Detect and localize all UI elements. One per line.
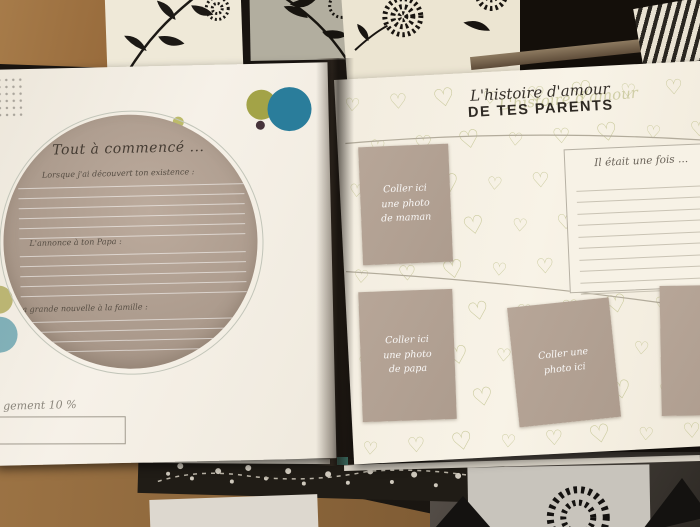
photo-placeholder-papa: Coller ici une photo de papa [358, 289, 456, 422]
photo-of-open-baby-memory-book: Tout à commencé ... Lorsque j'ai découve… [0, 0, 700, 527]
placeholder-text: Coller ici [385, 333, 429, 349]
dot-grid-ornament [0, 76, 23, 117]
progress-bar-outline [0, 416, 126, 444]
teal-circle-ornament [267, 87, 312, 132]
striped-paper-top-right [633, 0, 700, 70]
photo-placeholder-any: Coller une photo ici [507, 297, 621, 427]
writing-lines [18, 174, 245, 239]
placeholder-text: de papa [389, 362, 428, 378]
small-dot-ornament [256, 121, 265, 130]
white-paper-bottom [149, 494, 318, 527]
writing-lines [21, 308, 248, 353]
once-upon-title: Il était une fois ... [565, 152, 700, 171]
edge-teal-circle [0, 316, 18, 353]
placeholder-text: de maman [381, 211, 432, 228]
writing-lines [20, 242, 247, 297]
once-upon-a-time-box: Il était une fois ... [564, 143, 700, 294]
photo-placeholder-maman: Coller ici une photo de maman [358, 144, 453, 266]
writing-lines [576, 174, 700, 295]
loading-percent-label: gement 10 % [3, 398, 77, 413]
book-spine-shadow [316, 58, 354, 466]
lace-paper-bottom-right [467, 464, 650, 527]
taupe-story-circle: Tout à commencé ... Lorsque j'ai découve… [1, 112, 261, 372]
left-page: Tout à commencé ... Lorsque j'ai découve… [0, 62, 336, 466]
placeholder-text: photo ici [543, 360, 586, 379]
photo-placeholder-blank [660, 285, 700, 416]
right-page: ♡♡♡♡♡♡♡♡♡♡♡♡♡♡♡♡♡♡♡♡♡♡♡♡♡♡♡♡♡♡♡♡♡♡♡♡♡♡♡♡… [334, 60, 700, 464]
left-page-title: Tout à commencé ... [1, 138, 255, 160]
